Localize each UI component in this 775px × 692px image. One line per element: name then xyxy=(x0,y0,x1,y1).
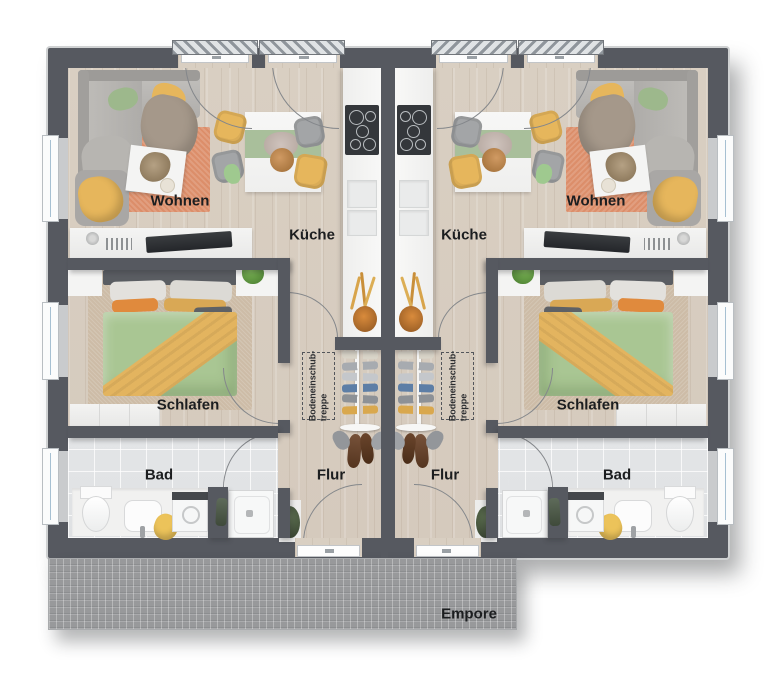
washing-machine-door xyxy=(182,506,200,524)
attic-ladder-label-line1: Bodeneinschub- xyxy=(308,351,319,422)
roof-window-canopy xyxy=(172,40,258,55)
attic-ladder-label: Bodeneinschub- treppe xyxy=(308,351,329,422)
room-label-hall: Flur xyxy=(317,467,345,484)
window-recess xyxy=(708,451,717,522)
roof-window-canopy xyxy=(259,40,345,55)
books xyxy=(644,238,670,250)
bed-pillow-orange xyxy=(112,298,159,313)
window-recess xyxy=(708,305,717,377)
wall-hall-upper xyxy=(486,258,498,363)
faucet xyxy=(631,526,636,538)
wall-kitchen-stub xyxy=(335,337,381,350)
burner-ring xyxy=(356,125,369,138)
entry-door-threshold xyxy=(416,545,479,557)
wardrobe xyxy=(616,404,706,426)
shoe-pair xyxy=(342,350,378,359)
room-label-living: Wohnen xyxy=(567,193,626,210)
floorplan: Bodeneinschub- treppe xyxy=(48,48,728,558)
sofa-backrest xyxy=(576,70,698,81)
room-label-bath: Bad xyxy=(145,467,173,484)
room-label-living: Wohnen xyxy=(151,193,210,210)
window xyxy=(42,135,59,222)
nightstand xyxy=(674,270,708,296)
shower-drain xyxy=(246,510,253,517)
shoe-pair xyxy=(342,405,378,414)
attic-ladder-label-line2: treppe xyxy=(318,351,329,422)
burner-ring xyxy=(400,138,413,151)
shoe-pair xyxy=(342,372,378,381)
speaker xyxy=(677,232,690,245)
burner-ring xyxy=(407,125,420,138)
unit-left: Bodeneinschub- treppe xyxy=(48,48,388,558)
room-label-bath: Bad xyxy=(603,467,631,484)
hall-shelf xyxy=(340,424,380,431)
room-label-kitchen: Küche xyxy=(289,227,335,244)
shower-plant-deco xyxy=(215,498,227,527)
attic-ladder-label-line2: treppe xyxy=(458,351,469,422)
nightstand xyxy=(68,270,102,296)
burner-ring xyxy=(365,111,376,122)
hall-shelf xyxy=(396,424,436,431)
attic-ladder-label-line1: Bodeneinschub- xyxy=(448,351,459,422)
shoe-pair xyxy=(398,383,434,392)
window xyxy=(717,135,734,222)
window-recess xyxy=(59,305,68,377)
room-label-bedroom: Schlafen xyxy=(157,397,220,414)
window xyxy=(42,302,59,380)
wall-central xyxy=(388,48,395,558)
bed xyxy=(539,312,673,396)
attic-ladder-label: Bodeneinschub- treppe xyxy=(448,351,469,422)
burner-ring xyxy=(349,110,364,125)
bed xyxy=(103,312,237,396)
window-recess xyxy=(59,138,68,219)
window-recess xyxy=(708,138,717,219)
kitchen-cabinet xyxy=(399,210,429,236)
flower-pot xyxy=(399,306,423,332)
table-deco-roll xyxy=(601,178,616,193)
duvet-yellow-band xyxy=(539,312,673,396)
wall-hall-upper xyxy=(278,258,290,363)
burner-ring xyxy=(415,139,426,150)
floorplan-canvas: Bodeneinschub- treppe xyxy=(0,0,775,692)
burner-ring xyxy=(363,138,376,151)
window xyxy=(717,302,734,380)
washing-machine-door xyxy=(576,506,594,524)
washing-machine-panel xyxy=(568,492,604,500)
flower-pot xyxy=(353,306,377,332)
sofa-backrest xyxy=(78,70,200,81)
wall-hall-lower xyxy=(278,488,290,538)
duvet-yellow-band xyxy=(103,312,237,396)
wall-bedroom-bath xyxy=(498,426,708,438)
wall-hall-lower xyxy=(486,488,498,538)
burner-ring xyxy=(412,110,427,125)
empore-gallery: Empore xyxy=(48,558,517,630)
bed-pillow-orange xyxy=(618,298,665,313)
kitchen-cabinet xyxy=(399,180,429,208)
burner-ring xyxy=(350,139,361,150)
roof-window-canopy xyxy=(431,40,517,55)
wall-hall-stub xyxy=(486,420,498,433)
wardrobe xyxy=(70,404,160,426)
room-label-hall: Flur xyxy=(431,467,459,484)
books xyxy=(106,238,132,250)
wall-living-bedroom xyxy=(68,258,290,270)
shower-plant-deco xyxy=(548,498,560,527)
room-label-kitchen: Küche xyxy=(441,227,487,244)
burner-ring xyxy=(400,111,411,122)
kitchen-cabinet xyxy=(347,210,377,236)
shoe-pair xyxy=(342,383,378,392)
shoe-pair xyxy=(398,372,434,381)
room-label-bedroom: Schlafen xyxy=(557,397,620,414)
dining-chair-yellow xyxy=(447,153,483,191)
faucet xyxy=(140,526,145,538)
shoe-pair xyxy=(398,350,434,359)
empore-label: Empore xyxy=(441,606,497,623)
roof-window-canopy xyxy=(518,40,604,55)
speaker xyxy=(86,232,99,245)
wall-living-bedroom xyxy=(486,258,708,270)
window xyxy=(717,448,734,525)
washing-machine-panel xyxy=(172,492,208,500)
shower-drain xyxy=(523,510,530,517)
kitchen-cabinet xyxy=(347,180,377,208)
table-deco-roll xyxy=(160,178,175,193)
wall-bedroom-bath xyxy=(68,426,278,438)
shoe-pair xyxy=(398,405,434,414)
wall-hall-stub xyxy=(278,420,290,433)
copper-bowl xyxy=(270,148,294,172)
copper-bowl xyxy=(482,148,506,172)
window xyxy=(42,448,59,525)
wall-kitchen-stub xyxy=(395,337,441,350)
unit-right: Bodeneinschub- treppe xyxy=(388,48,728,558)
wall-central xyxy=(381,48,388,558)
entry-door-threshold xyxy=(297,545,360,557)
window-recess xyxy=(59,451,68,522)
